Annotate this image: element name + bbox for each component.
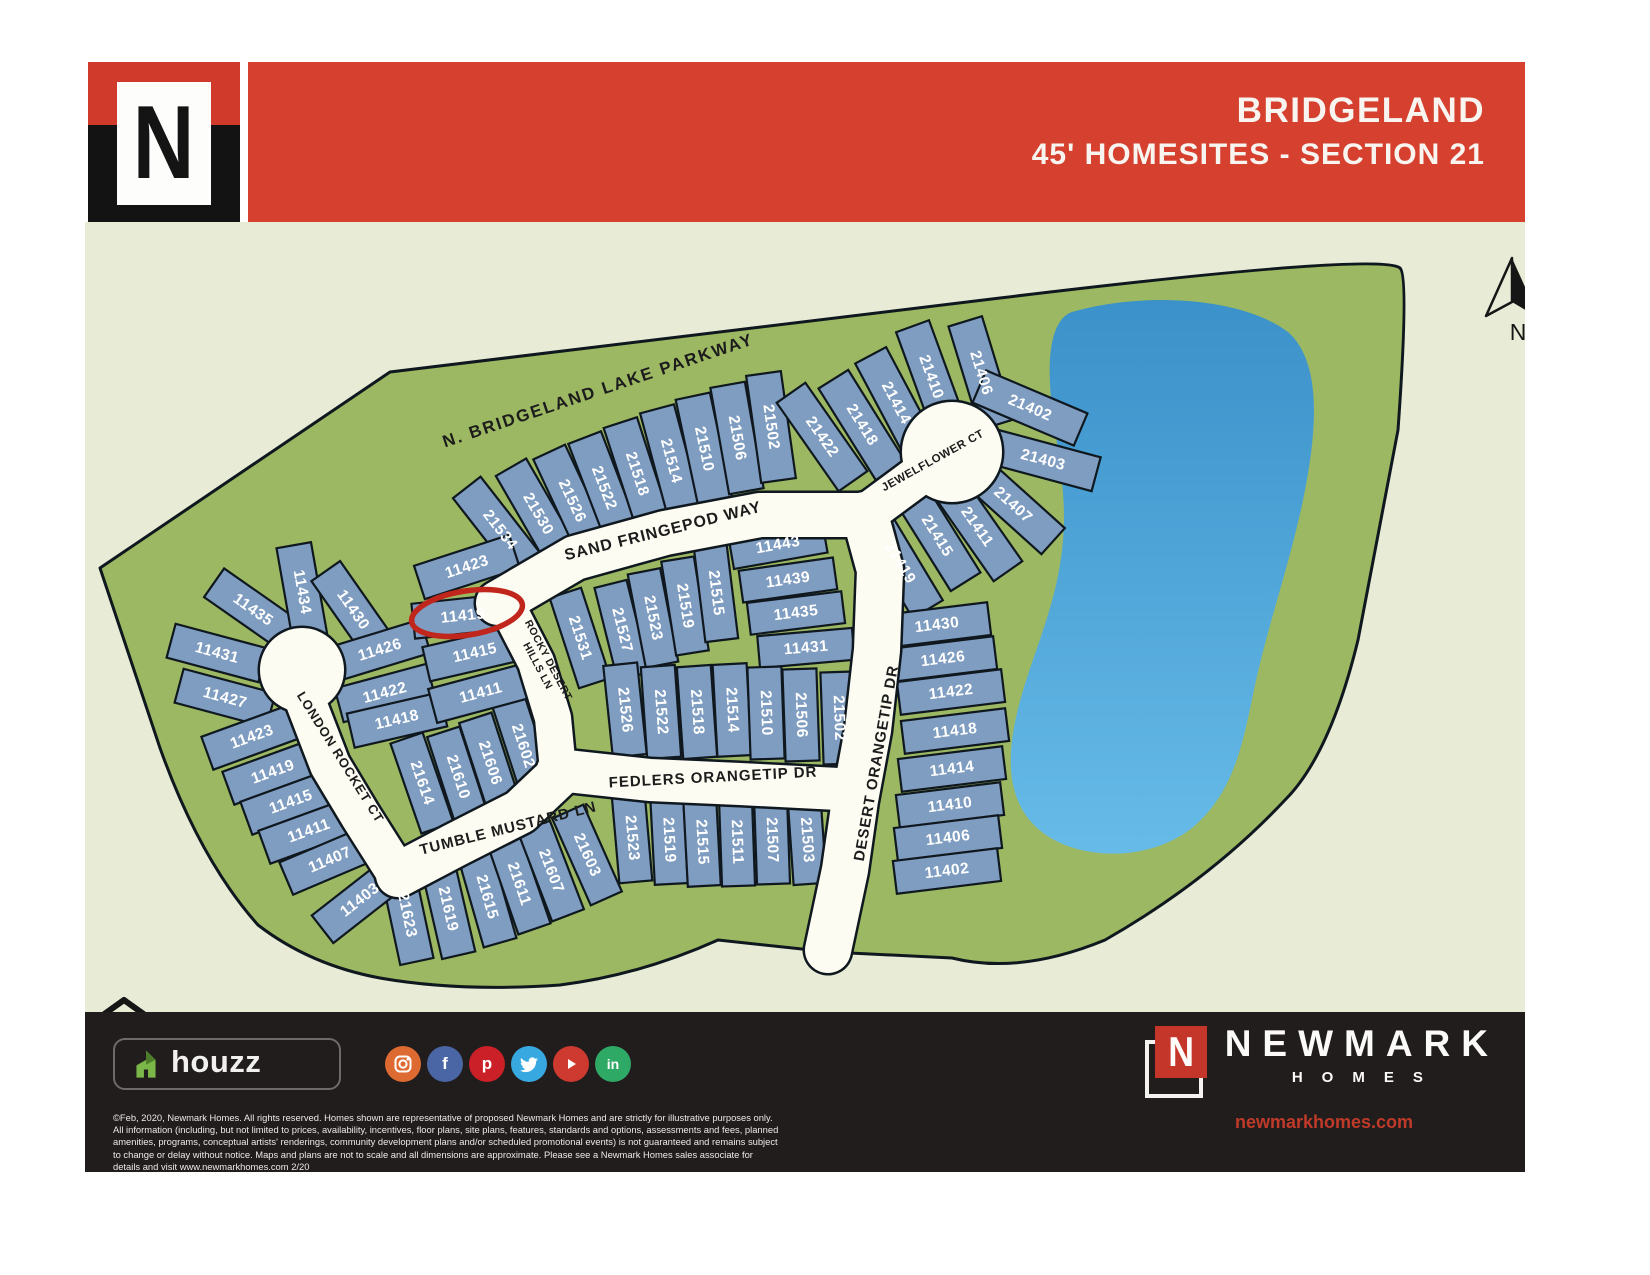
brand-name: NEWMARK bbox=[1225, 1024, 1499, 1065]
equal-housing-icon bbox=[96, 1000, 152, 1012]
lot-label-21507: 21507 bbox=[763, 817, 782, 863]
header-band: BRIDGELAND 45' HOMESITES - SECTION 21 bbox=[248, 62, 1525, 222]
lot-label-21506: 21506 bbox=[792, 692, 811, 738]
website-url[interactable]: newmarkhomes.com bbox=[1149, 1112, 1499, 1133]
lot-label-21514: 21514 bbox=[722, 687, 741, 733]
pinterest-icon[interactable]: p bbox=[469, 1046, 505, 1082]
north-arrow-icon: N bbox=[1486, 258, 1525, 345]
linkedin-icon[interactable]: in bbox=[595, 1046, 631, 1082]
houzz-badge[interactable]: houzz bbox=[113, 1038, 341, 1090]
lot-label-21511: 21511 bbox=[728, 819, 747, 864]
newmark-footer-logo: N bbox=[1143, 1024, 1211, 1096]
lot-label-21522: 21522 bbox=[651, 689, 671, 736]
lot-label-21503: 21503 bbox=[797, 817, 817, 864]
twitter-icon[interactable] bbox=[511, 1046, 547, 1082]
lot-label-21518: 21518 bbox=[687, 689, 707, 736]
footer-band: houzz fpin ©Feb, 2020, Newmark Homes. Al… bbox=[85, 1012, 1525, 1172]
brand-wordmark: NEWMARK HOMES bbox=[1225, 1024, 1499, 1086]
site-map-svg: 2153421530215262152221518215142151021506… bbox=[85, 222, 1525, 1012]
community-name: BRIDGELAND bbox=[1032, 90, 1485, 132]
lot-label-21515: 21515 bbox=[692, 819, 711, 865]
flyer-page: BRIDGELAND 45' HOMESITES - SECTION 21 N bbox=[0, 0, 1650, 1275]
instagram-icon[interactable] bbox=[385, 1046, 421, 1082]
logo-letter: N bbox=[133, 91, 195, 195]
houzz-icon bbox=[131, 1049, 161, 1079]
social-icons-row: fpin bbox=[385, 1046, 631, 1082]
footer-brand: N NEWMARK HOMES newmarkhomes.com bbox=[1149, 1024, 1499, 1133]
section-subtitle: 45' HOMESITES - SECTION 21 bbox=[1032, 132, 1485, 177]
facebook-icon[interactable]: f bbox=[427, 1046, 463, 1082]
lot-label-21510: 21510 bbox=[757, 690, 776, 736]
logo-inner: N bbox=[117, 82, 211, 205]
north-label: N bbox=[1510, 319, 1525, 345]
lot-label-21502: 21502 bbox=[830, 695, 849, 741]
brand-sub: HOMES bbox=[1225, 1069, 1499, 1086]
houzz-label: houzz bbox=[171, 1044, 261, 1080]
site-plan-map: 2153421530215262152221518215142151021506… bbox=[85, 222, 1525, 1012]
youtube-icon[interactable] bbox=[553, 1046, 589, 1082]
page-title: BRIDGELAND 45' HOMESITES - SECTION 21 bbox=[1032, 90, 1485, 177]
logo-red-square: N bbox=[1155, 1026, 1207, 1078]
newmark-logo: N bbox=[88, 62, 240, 228]
lot-label-21519: 21519 bbox=[659, 817, 678, 863]
disclaimer-text: ©Feb, 2020, Newmark Homes. All rights re… bbox=[113, 1112, 781, 1173]
logo-letter: N bbox=[1168, 1031, 1194, 1073]
